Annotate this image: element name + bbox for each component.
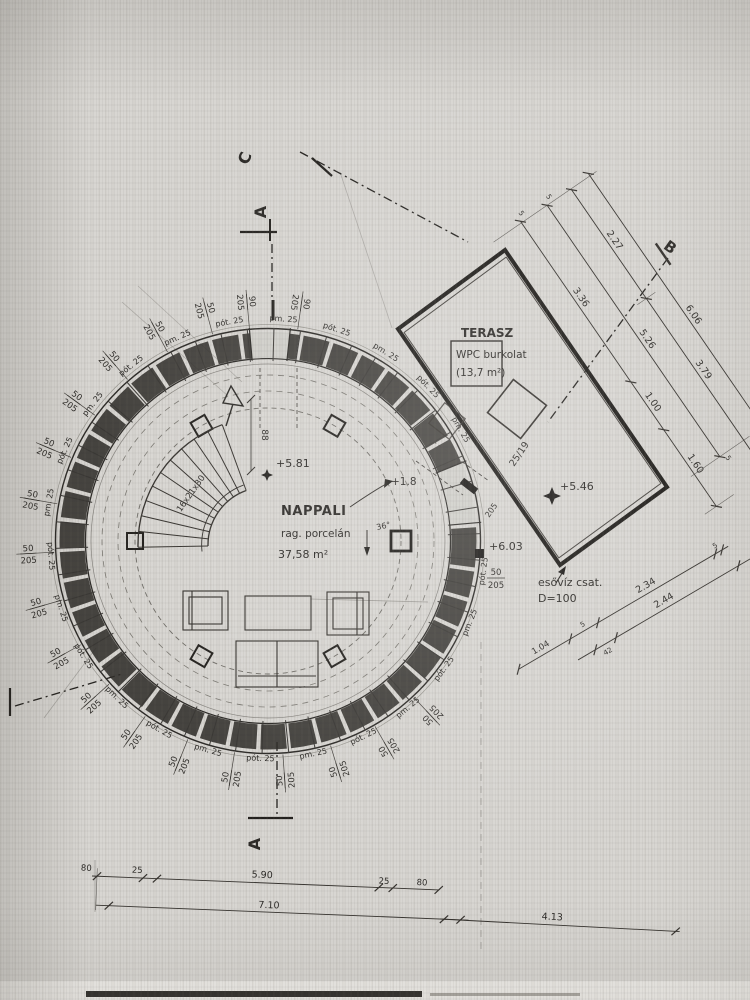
floor-plan-photo: A A C 16x21x30 bbox=[0, 0, 750, 1000]
svg-text:90: 90 bbox=[246, 296, 257, 308]
right-col-note: 205 bbox=[483, 501, 499, 519]
radial-dim-label: 90205 bbox=[234, 293, 257, 311]
stair-step bbox=[138, 546, 208, 547]
radial-dim-label: 50205 bbox=[21, 489, 41, 513]
photo-bottom-line bbox=[86, 991, 422, 997]
bottom-dims: 80 25 5.90 25 80 7.10 bbox=[79, 863, 470, 926]
plan-drawing: A A C 16x21x30 bbox=[0, 0, 750, 1000]
terrace-label-box bbox=[451, 341, 502, 386]
wall-segment-label: pm. 25 bbox=[269, 314, 298, 325]
door-level: +1.8 bbox=[391, 476, 417, 488]
dim-88-label: 88 bbox=[259, 429, 269, 441]
terrace-level-low: +5.46 bbox=[560, 480, 594, 493]
wall-segment-label: pm. 25 bbox=[299, 746, 328, 761]
terrace-step bbox=[488, 380, 547, 439]
stair-direction-arrow bbox=[223, 386, 243, 426]
svg-text:205: 205 bbox=[30, 607, 48, 621]
wall-segment-label: pm. 25 bbox=[372, 341, 401, 364]
radial-dim-label: 50205 bbox=[46, 645, 71, 672]
svg-text:5: 5 bbox=[579, 620, 587, 629]
radial-dim-label: 50205 bbox=[20, 544, 37, 567]
svg-text:50: 50 bbox=[204, 301, 216, 314]
terrace-area: (13,7 m²) bbox=[456, 367, 505, 379]
svg-text:50: 50 bbox=[328, 765, 341, 778]
svg-text:2.34: 2.34 bbox=[634, 576, 658, 596]
right-radial-label: 50 205 bbox=[487, 568, 505, 591]
svg-text:205: 205 bbox=[232, 770, 244, 788]
radial-dim-label: 50205 bbox=[419, 702, 446, 729]
svg-text:50: 50 bbox=[22, 544, 33, 555]
terrace-dim-chains: 3.36 1.00 1.60 5 5.26 5 5 2.27 3.79 5 6.… bbox=[488, 147, 750, 540]
column bbox=[191, 645, 213, 667]
beam-note: 25/19 bbox=[507, 440, 531, 469]
furniture bbox=[183, 591, 369, 687]
wall-segment-labels: pm. 25pót. 25pm. 25pót. 25pm. 25pót. 25p… bbox=[42, 314, 490, 764]
wall-segment-label: pót. 25 bbox=[46, 542, 58, 571]
radial-dim-label: 50205 bbox=[35, 435, 59, 462]
wall-segment-label: pót. 25 bbox=[246, 752, 275, 763]
radial-dim-label: 90205 bbox=[288, 294, 312, 313]
svg-text:5: 5 bbox=[544, 193, 553, 201]
terrace-finish: WPC burkolat bbox=[456, 349, 527, 361]
drain-note-1: esővíz csat. bbox=[538, 576, 602, 589]
radial-dim-label: 50205 bbox=[27, 596, 49, 622]
columns bbox=[127, 415, 345, 667]
photo-bottom-line-2 bbox=[430, 993, 580, 996]
interior-guide-circles bbox=[102, 375, 434, 707]
stair-step bbox=[139, 531, 209, 538]
radial-dim-label: 50205 bbox=[77, 689, 104, 716]
radial-dim-label: 50205 bbox=[192, 299, 217, 320]
radial-dim-label: 50205 bbox=[166, 752, 192, 775]
svg-text:5: 5 bbox=[711, 541, 719, 550]
svg-text:205: 205 bbox=[20, 556, 37, 567]
room-level: +5.81 bbox=[276, 457, 310, 470]
radial-dim-label: 50205 bbox=[376, 736, 403, 761]
level-marker-icon bbox=[261, 469, 273, 481]
svg-text:205: 205 bbox=[287, 771, 298, 788]
svg-text:50: 50 bbox=[491, 568, 502, 578]
room-finish: rag. porcelán bbox=[281, 528, 351, 540]
section-label-a-top: A bbox=[251, 205, 270, 218]
small-down-arrow bbox=[364, 530, 370, 556]
svg-text:80: 80 bbox=[416, 878, 427, 888]
star-marker-icon bbox=[543, 487, 561, 505]
svg-text:50: 50 bbox=[26, 489, 38, 501]
svg-text:2.44: 2.44 bbox=[652, 591, 676, 611]
wall-ticks bbox=[55, 328, 481, 754]
bottom-right-dims: 1.04 5 2.34 5 42 2.44 bbox=[509, 527, 750, 701]
dim-88 bbox=[247, 395, 255, 475]
coffee-table bbox=[245, 596, 311, 630]
section-label-a-bottom: A bbox=[245, 837, 264, 850]
svg-text:205: 205 bbox=[488, 581, 504, 591]
svg-text:205: 205 bbox=[338, 759, 352, 777]
bottom-dim-413: 4.13 bbox=[440, 906, 681, 936]
svg-text:5: 5 bbox=[517, 209, 526, 217]
svg-text:1.04: 1.04 bbox=[530, 639, 551, 657]
svg-text:90: 90 bbox=[300, 298, 311, 310]
window-projection bbox=[260, 368, 297, 429]
drain-note-2: D=100 bbox=[538, 592, 577, 605]
svg-text:50: 50 bbox=[220, 771, 232, 783]
svg-text:5: 5 bbox=[724, 454, 733, 462]
svg-text:205: 205 bbox=[21, 500, 39, 513]
section-label-c: C bbox=[234, 149, 256, 167]
svg-text:42: 42 bbox=[602, 646, 614, 657]
level-square-icon bbox=[475, 549, 484, 558]
radial-dim-label: 50205 bbox=[118, 725, 145, 751]
wall-segment-label: pm. 25 bbox=[53, 593, 70, 623]
stair-step bbox=[141, 516, 209, 532]
radial-dim-label: 50205 bbox=[275, 771, 298, 789]
svg-text:25: 25 bbox=[132, 866, 143, 876]
svg-text:205: 205 bbox=[192, 302, 206, 320]
radial-dim-label: 50205 bbox=[220, 769, 244, 788]
room-area: 37,58 m² bbox=[278, 548, 328, 561]
svg-text:7.10: 7.10 bbox=[258, 900, 280, 912]
svg-text:5.90: 5.90 bbox=[251, 869, 273, 881]
construction-lines bbox=[44, 172, 481, 950]
stair-note: 16x21x30 bbox=[175, 474, 208, 515]
svg-text:25: 25 bbox=[378, 877, 389, 887]
wall-segment-label: pót. 25 bbox=[322, 320, 352, 338]
svg-text:80: 80 bbox=[81, 864, 92, 874]
radial-dim-label: 50205 bbox=[327, 759, 353, 781]
terrace-level-high: +6.03 bbox=[489, 540, 523, 553]
svg-text:50: 50 bbox=[29, 597, 42, 610]
svg-text:205: 205 bbox=[234, 294, 245, 311]
room-name: NAPPALI bbox=[281, 504, 347, 519]
svg-text:50: 50 bbox=[275, 775, 286, 786]
terrace-name: TERASZ bbox=[461, 326, 514, 340]
svg-text:205: 205 bbox=[288, 294, 300, 311]
svg-text:4.13: 4.13 bbox=[541, 911, 563, 923]
room-angle-note: 36° bbox=[376, 520, 392, 532]
stair-step bbox=[222, 425, 246, 491]
door-level-leader bbox=[350, 479, 393, 507]
